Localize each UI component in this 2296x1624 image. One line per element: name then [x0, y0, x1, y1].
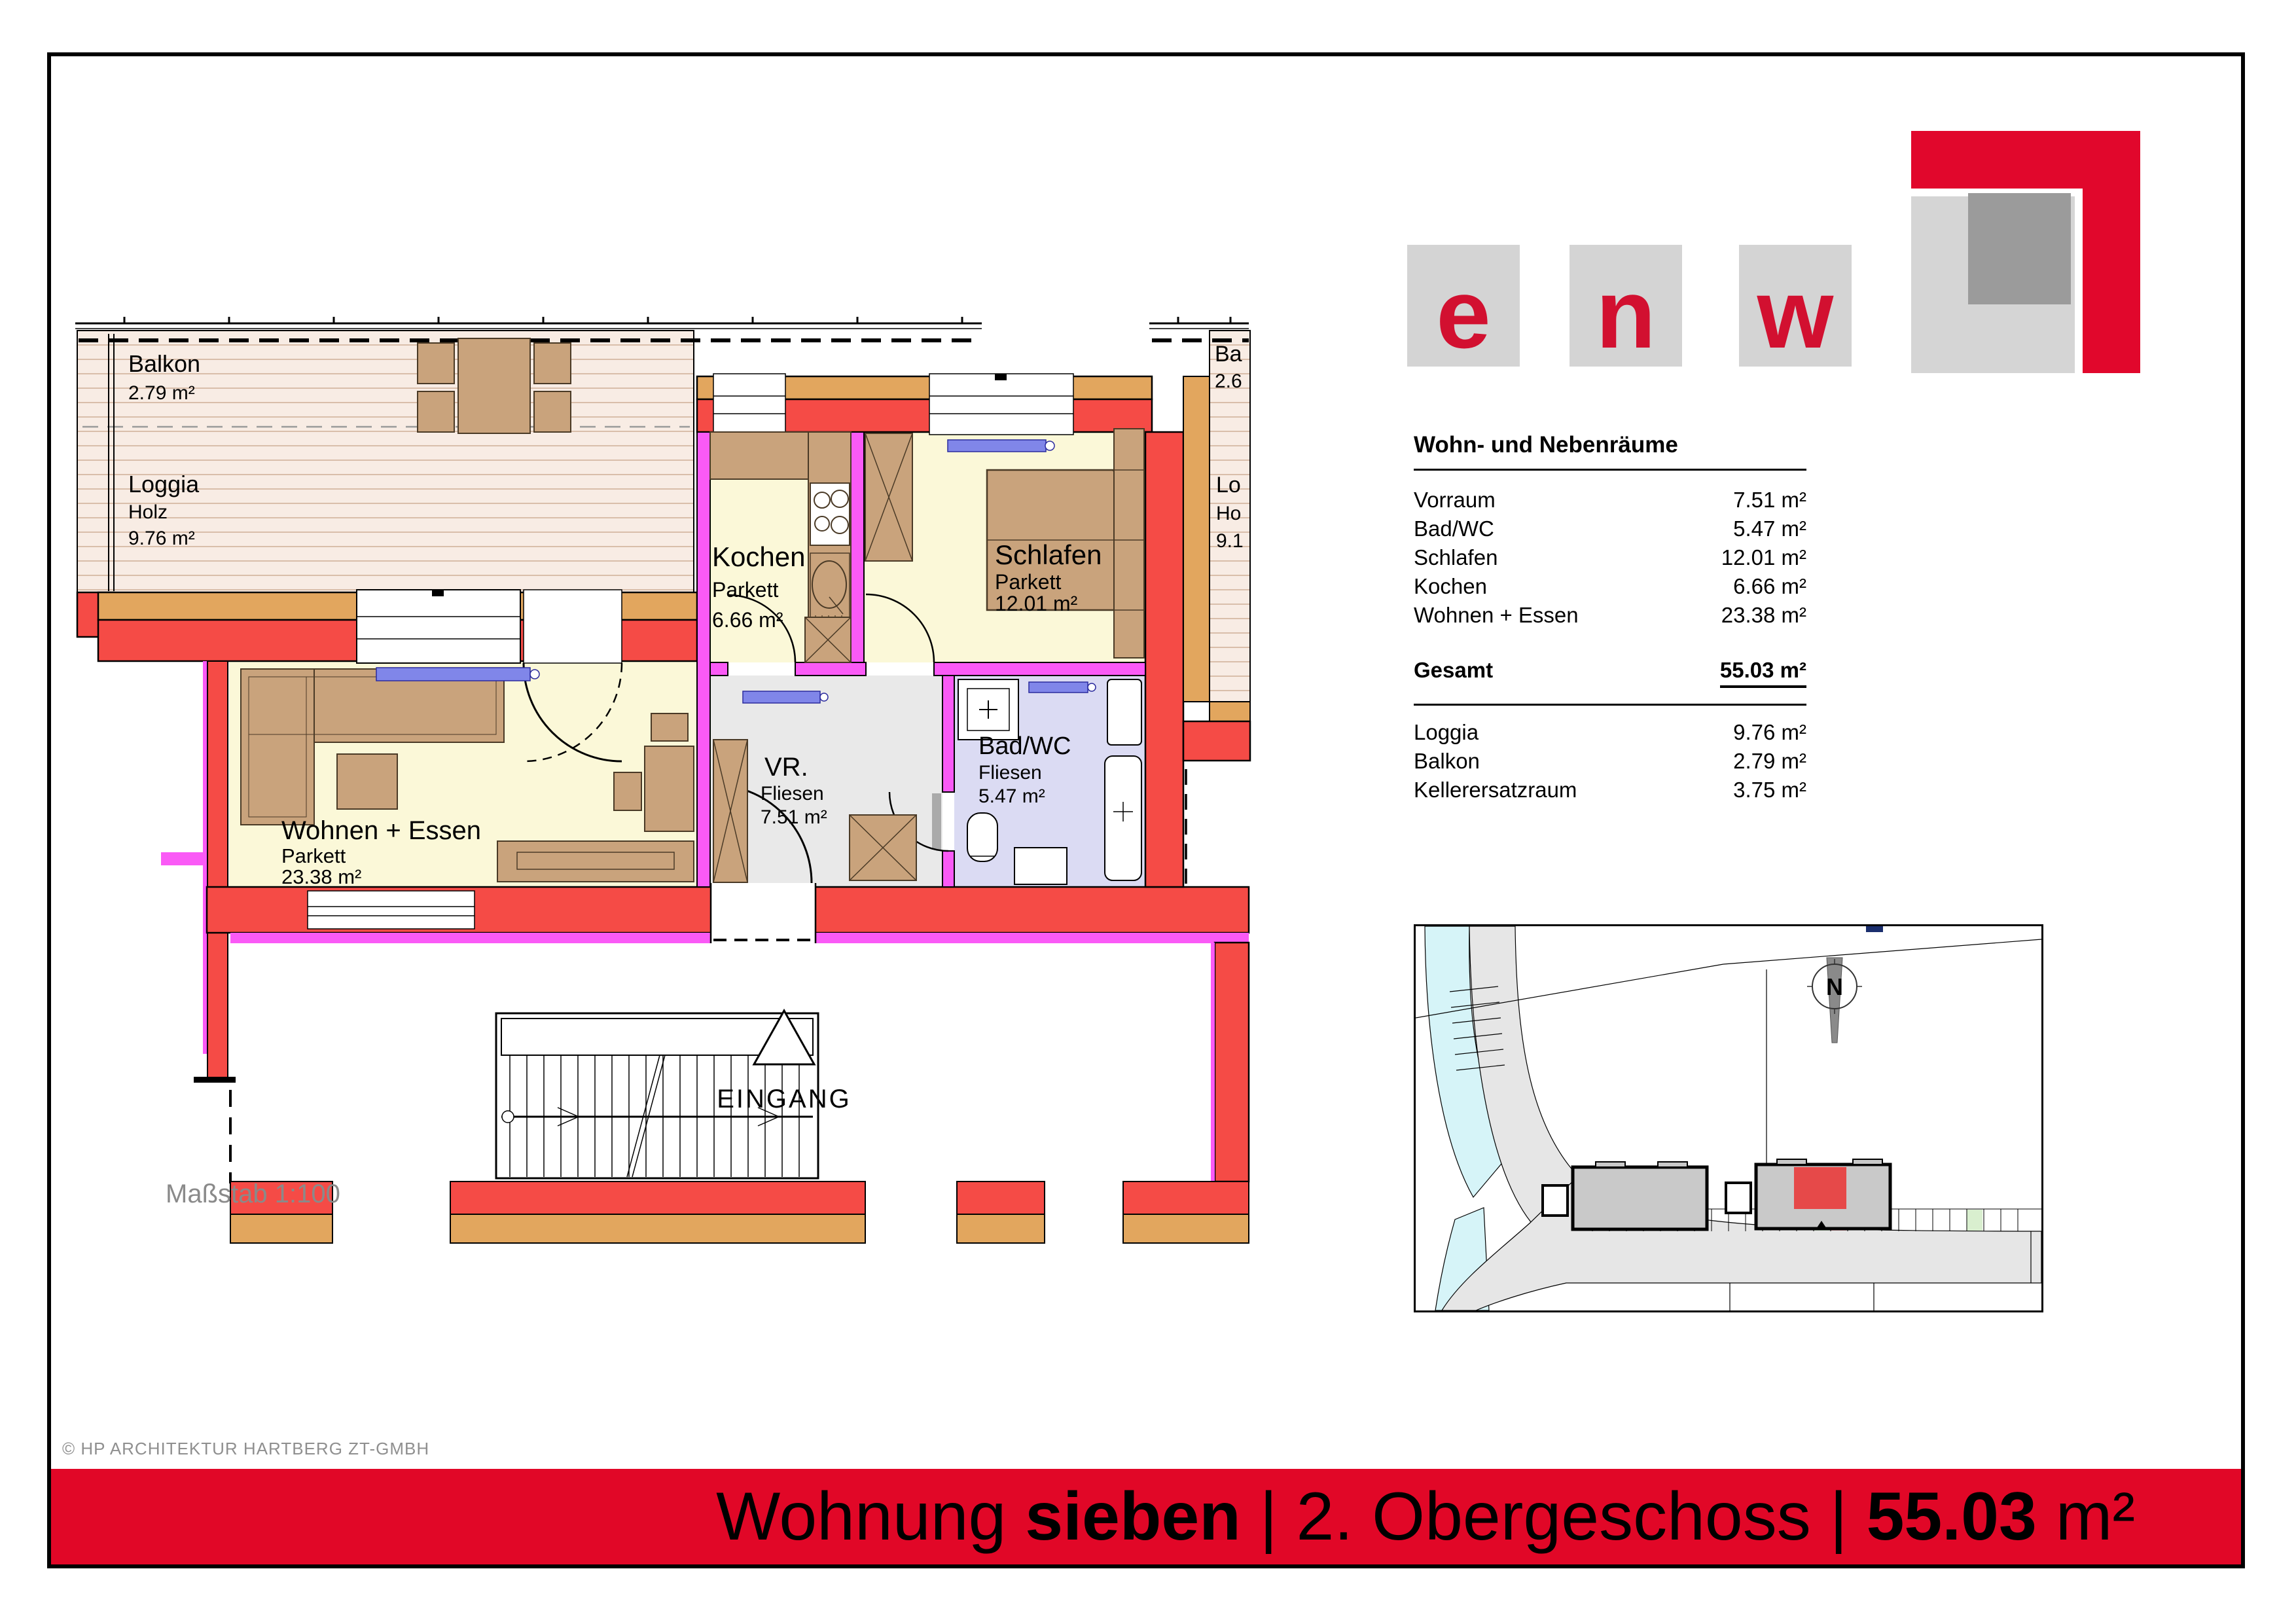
- bedroom-window: [929, 374, 1073, 435]
- row-value: 7.51 m²: [1733, 488, 1806, 513]
- site-marker: [1866, 926, 1883, 932]
- hall-wardrobe: [713, 740, 747, 882]
- row-value: 5.47 m²: [1733, 516, 1806, 541]
- bad-label: Bad/WC: [978, 732, 1071, 760]
- radiator: [948, 440, 1046, 452]
- bad-area: 5.47 m²: [978, 785, 1045, 807]
- row-label: Vorraum: [1414, 488, 1496, 513]
- hob: [810, 483, 850, 545]
- table-divider: [1414, 704, 1806, 706]
- row-value: 6.66 m²: [1733, 574, 1806, 599]
- washbasin: [1107, 679, 1141, 745]
- plan-sheet: e n w Wohn- und Nebenräume Vorraum7.51 m…: [0, 0, 2296, 1624]
- logo-mark-darkgray: [1968, 193, 2071, 304]
- room-table-outdoor-rows: Loggia9.76 m² Balkon2.79 m² Kellerersatz…: [1414, 720, 1806, 806]
- coffee-table: [337, 754, 397, 809]
- row-value: 23.38 m²: [1721, 603, 1806, 628]
- wardrobe: [865, 433, 912, 561]
- kitchen-counter: [710, 432, 810, 479]
- svg-text:Lo: Lo: [1216, 473, 1241, 497]
- site-building-highlight: [1794, 1167, 1846, 1209]
- north-letter: N: [1826, 973, 1843, 1000]
- bath-door-sill: [932, 793, 941, 850]
- radiator: [743, 691, 820, 703]
- balkon-area: 2.79 m²: [128, 382, 195, 404]
- table-row: Schlafen12.01 m²: [1414, 545, 1806, 574]
- row-label: Kellerersatzraum: [1414, 778, 1577, 803]
- logo-letter-e: e: [1407, 245, 1520, 367]
- wohnen-label: Wohnen + Essen: [281, 816, 481, 845]
- table-row: Loggia9.76 m²: [1414, 720, 1806, 749]
- svg-text:2.6: 2.6: [1215, 370, 1242, 392]
- title-apartment-name: sieben: [1025, 1478, 1240, 1556]
- row-label: Wohnen + Essen: [1414, 603, 1579, 628]
- schlafen-label: Schlafen: [995, 539, 1102, 570]
- bath-cabinet: [1014, 848, 1067, 884]
- loggia-label: Loggia: [128, 471, 200, 497]
- chair: [614, 772, 641, 810]
- chair: [651, 713, 688, 741]
- vr-area: 7.51 m²: [761, 806, 827, 828]
- kochen-label: Kochen: [712, 541, 805, 572]
- row-label: Kochen: [1414, 574, 1487, 599]
- hall-cabinet: [850, 815, 916, 880]
- row-label: Loggia: [1414, 720, 1479, 745]
- logo-letter: w: [1757, 264, 1834, 363]
- neighbor-wood-wall: [1183, 376, 1210, 702]
- logo-letter-n: n: [1570, 245, 1682, 367]
- floor-plan: EINGANG Balkon 2.79 m² Loggia Holz 9.76 …: [65, 288, 1296, 1250]
- vr-material: Fliesen: [761, 783, 824, 804]
- loggia-area: 9.76 m²: [128, 528, 195, 549]
- radiator-valve-icon: [1045, 441, 1054, 450]
- wohnen-area: 23.38 m²: [281, 865, 361, 888]
- svg-text:Ba: Ba: [1215, 342, 1242, 367]
- site-plan: N: [1414, 924, 2043, 1312]
- site-buildings: [1543, 1159, 1890, 1229]
- vr-label: VR.: [764, 753, 808, 782]
- room-table-rows: Vorraum7.51 m² Bad/WC5.47 m² Schlafen12.…: [1414, 488, 1806, 632]
- total-label: Gesamt: [1414, 658, 1493, 683]
- radiator: [376, 668, 530, 681]
- kochen-area: 6.66 m²: [712, 608, 783, 632]
- table-row: Wohnen + Essen23.38 m²: [1414, 603, 1806, 632]
- title-pre: Wohnung: [716, 1478, 1025, 1556]
- kitchen-window: [713, 374, 785, 435]
- living-window: [357, 590, 520, 663]
- bad-material: Fliesen: [978, 762, 1042, 784]
- left-wall-magenta: [203, 661, 207, 1054]
- table-total-row: Gesamt 55.03 m²: [1414, 658, 1806, 687]
- table-row: Balkon2.79 m²: [1414, 749, 1806, 778]
- scale-label: Maßstab 1:100: [166, 1180, 340, 1209]
- table-row: Kellerersatzraum3.75 m²: [1414, 778, 1806, 806]
- shower: [958, 679, 1018, 740]
- svg-text:9.1: 9.1: [1216, 530, 1244, 552]
- sideboard: [497, 841, 694, 882]
- table-row: Bad/WC5.47 m²: [1414, 516, 1806, 545]
- room-table-title: Wohn- und Nebenräume: [1414, 432, 1806, 471]
- radiator-valve-icon: [530, 670, 539, 679]
- sofa: [241, 669, 314, 825]
- title-area-unit: m²: [2037, 1478, 2135, 1556]
- row-label: Schlafen: [1414, 545, 1498, 570]
- tall-cabinet: [805, 617, 851, 662]
- table-row: Kochen6.66 m²: [1414, 574, 1806, 603]
- title-band: Wohnung sieben | 2. Obergeschoss | 55.03…: [51, 1469, 2241, 1564]
- schlafen-area: 12.01 m²: [995, 592, 1078, 615]
- row-value: 2.79 m²: [1733, 749, 1806, 774]
- bathtub: [1105, 756, 1141, 880]
- row-value: 9.76 m²: [1733, 720, 1806, 745]
- radiator-valve-icon: [820, 693, 828, 701]
- north-arrow: N: [1807, 958, 1862, 1043]
- loggia-material: Holz: [128, 501, 168, 523]
- title-area-value: 55.03: [1867, 1478, 2037, 1556]
- row-value: 3.75 m²: [1733, 778, 1806, 803]
- radiator-valve-icon: [1088, 683, 1096, 691]
- bedside-closet: [1114, 429, 1144, 658]
- site-building-left: [1573, 1167, 1707, 1229]
- row-label: Bad/WC: [1414, 516, 1494, 541]
- lower-walls: [230, 1182, 1249, 1243]
- row-label: Balkon: [1414, 749, 1480, 774]
- balkon-label: Balkon: [128, 350, 200, 377]
- copyright-label: © HP ARCHITEKTUR HARTBERG ZT-GMBH: [62, 1439, 429, 1459]
- toilet: [967, 813, 997, 861]
- dining-table: [645, 746, 694, 831]
- row-value: 12.01 m²: [1721, 545, 1806, 570]
- kochen-material: Parkett: [712, 578, 778, 602]
- svg-text:Ho: Ho: [1216, 503, 1241, 524]
- schlafen-material: Parkett: [995, 570, 1061, 594]
- total-value: 55.03 m²: [1720, 658, 1806, 688]
- bottom-wall-window: [308, 891, 475, 929]
- logo-letter: n: [1596, 264, 1656, 363]
- logo-letter-w: w: [1739, 245, 1852, 367]
- table-row: Vorraum7.51 m²: [1414, 488, 1806, 516]
- site-roads: [1442, 926, 2041, 1310]
- radiator: [1029, 682, 1088, 693]
- wohnen-material: Parkett: [281, 844, 346, 867]
- entrance-label: EINGANG: [717, 1085, 851, 1113]
- logo-mark: [1911, 131, 2140, 373]
- neighbor-wall-stub: [1183, 721, 1250, 761]
- title-floor: | 2. Obergeschoss |: [1241, 1478, 1867, 1556]
- logo-letter: e: [1436, 264, 1490, 363]
- room-table: Wohn- und Nebenräume Vorraum7.51 m² Bad/…: [1414, 432, 1806, 806]
